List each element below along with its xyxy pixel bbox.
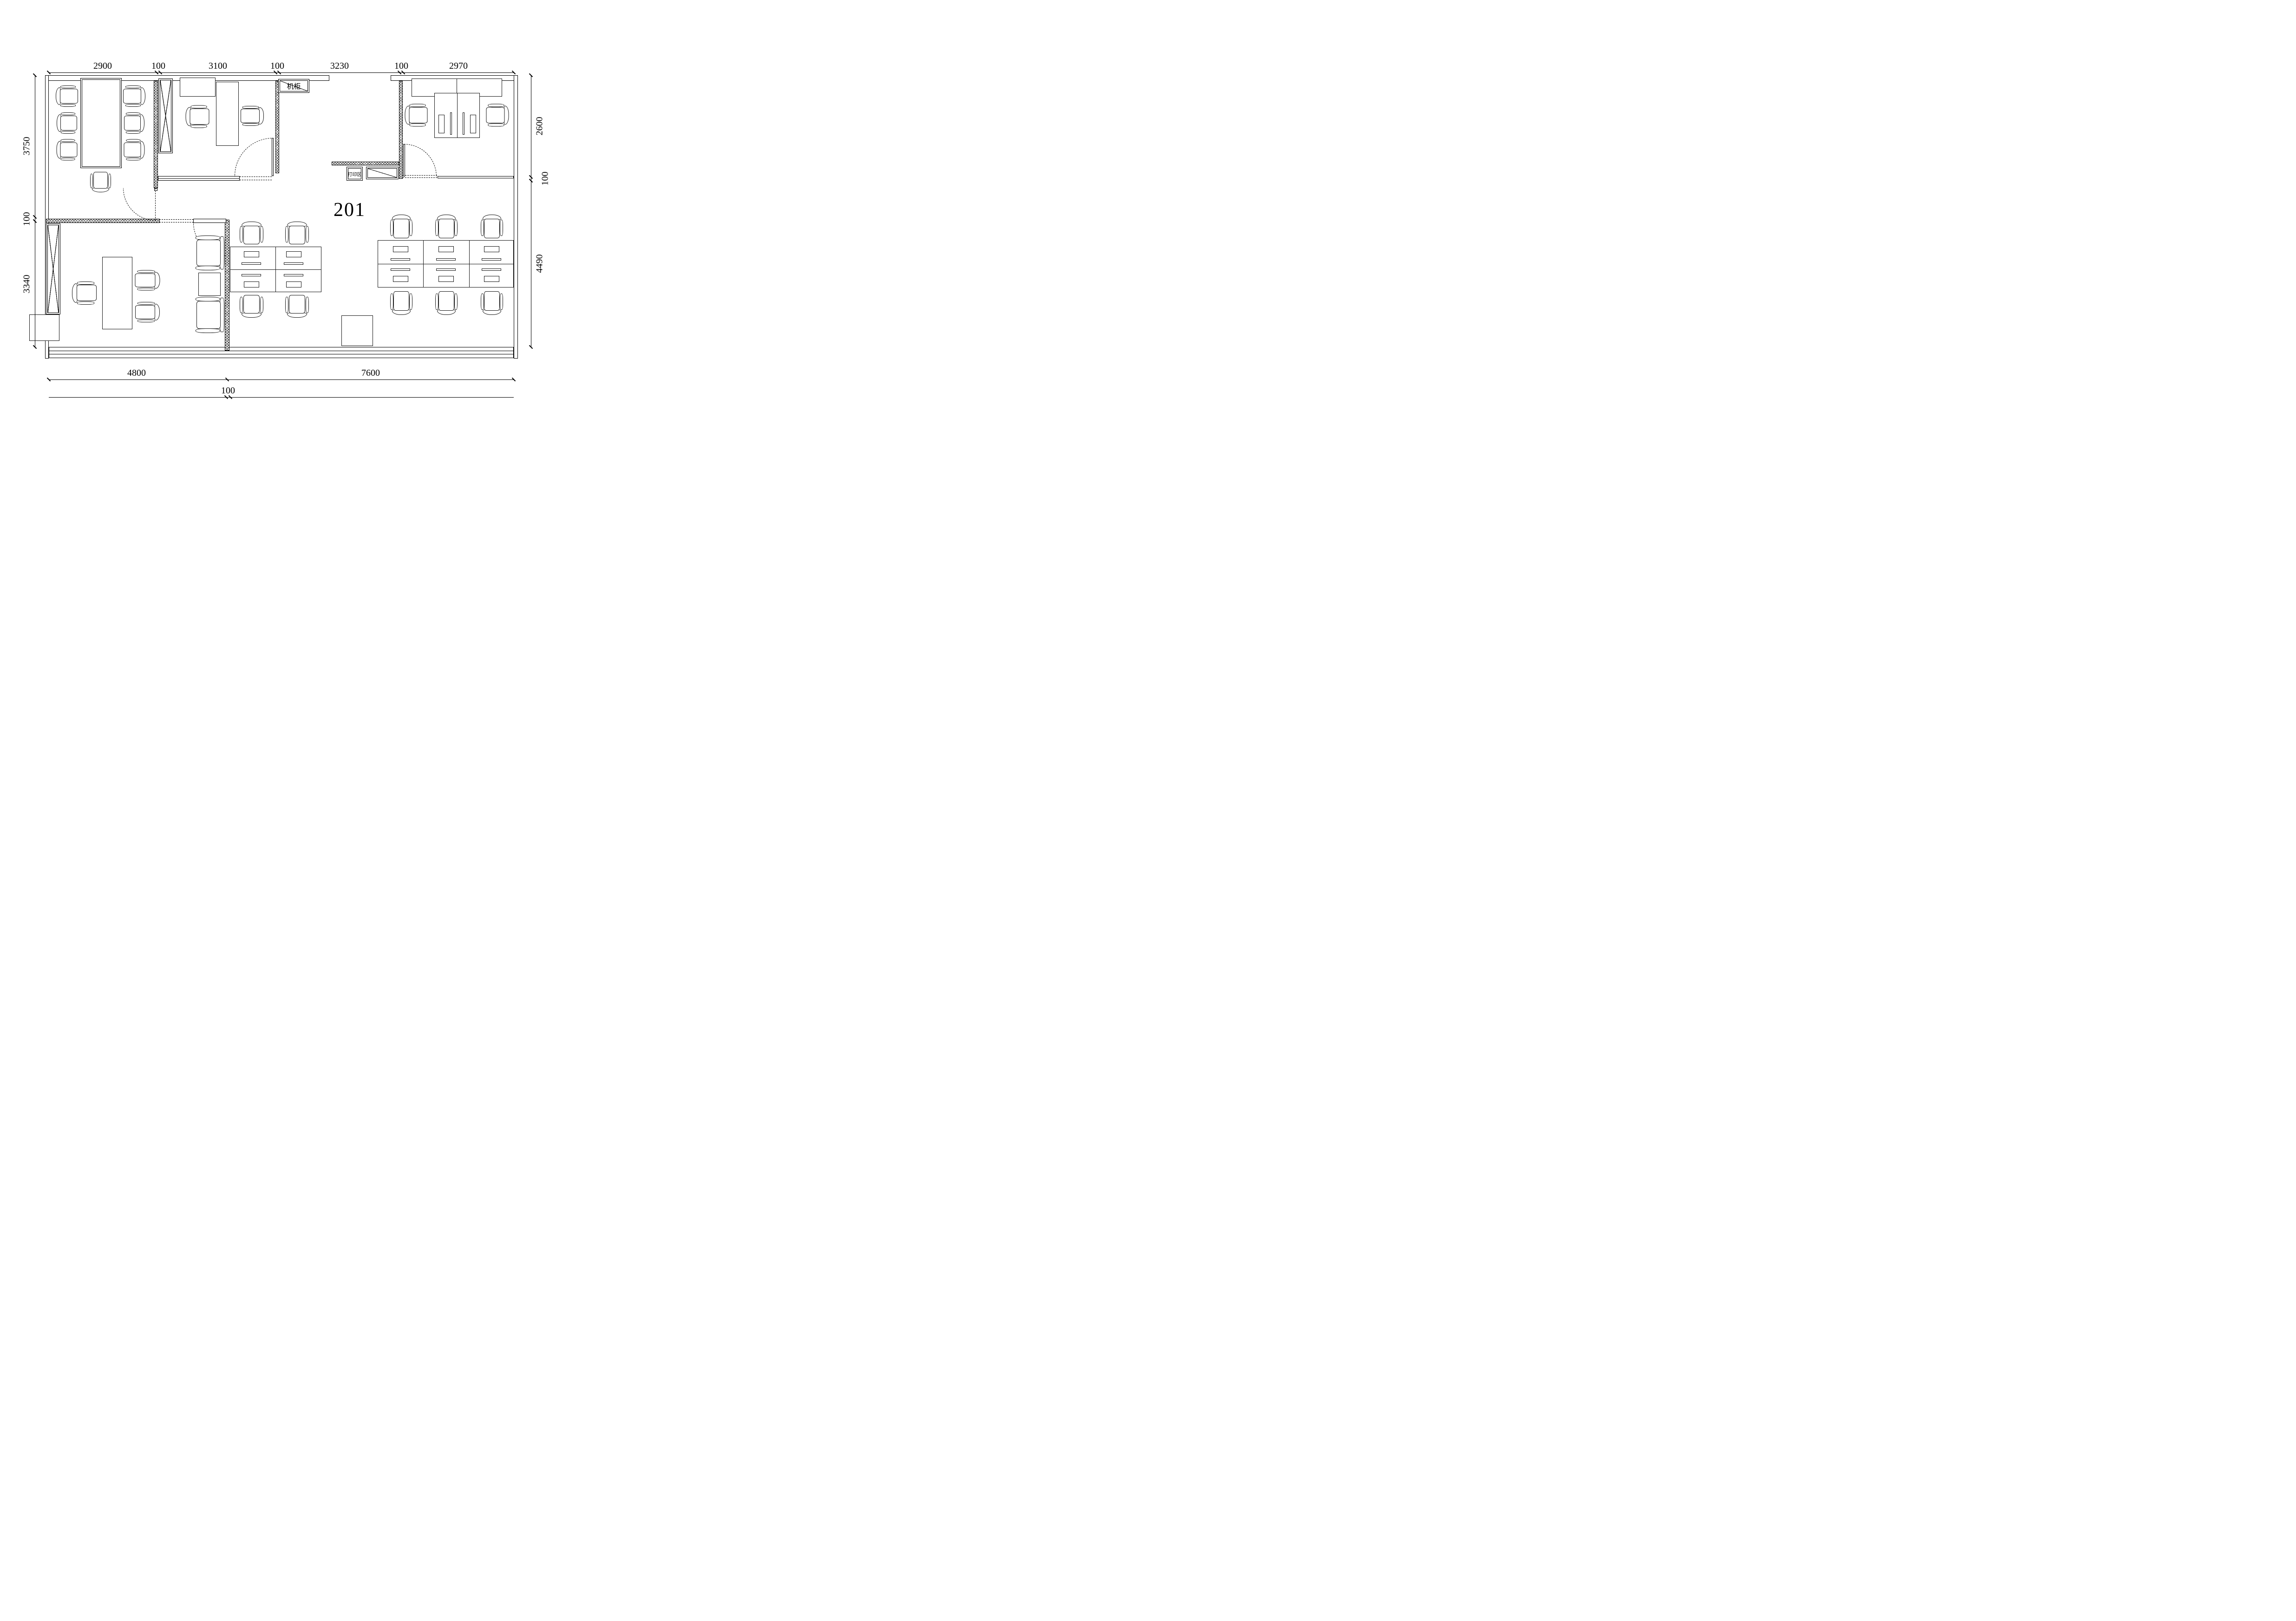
dim-top-3: 3100 [209,61,227,72]
dim-bottom-2: 7600 [361,368,380,379]
workstation-chair [390,290,412,315]
door-leaf-meeting-room [155,188,156,221]
dim-line-bottom [49,379,514,380]
office2-desk [216,82,239,146]
monitor [438,276,454,282]
conference-chair [56,85,79,107]
workstation-chair [435,290,458,315]
dim-bottom-offset: 100 [221,386,235,396]
dim-top-6: 100 [394,61,408,72]
office2-guest-chair [239,106,264,126]
wall-office4-left [399,81,403,179]
conference-chair [90,171,111,192]
server-cabinet-label: 机柜 [278,79,309,93]
keyboard [436,258,456,261]
workstation-chair [240,294,263,318]
lounge-sofa [195,235,224,270]
door-leaf-office4 [403,144,405,176]
glass-mid-line [158,178,240,179]
floor-cabinet-box [341,315,373,346]
window-curtain-wall-bottom [49,347,514,358]
wall-office2-right [275,81,279,173]
workstation-chair [481,215,503,240]
keyboard [470,115,476,133]
keyboard [482,258,501,261]
monitor [244,281,259,288]
room-number: 201 [334,199,366,221]
keyboard [438,115,445,133]
keyboard [284,262,303,265]
door-threshold-office2 [240,176,272,180]
dim-line-left [35,75,35,347]
desk-divider [230,269,321,270]
workstation-chair [240,222,263,246]
keyboard [482,268,501,271]
office4-chair [405,104,429,127]
keyboard [391,258,410,261]
dim-top-4: 100 [270,61,284,72]
dim-line-right [531,75,531,347]
floor-plan: 机柜 打印区 201 [0,0,574,405]
monitor [463,112,464,135]
room3-guest-chair [134,270,160,291]
dim-line-top [49,72,514,73]
door-arc-meeting-room [123,188,156,221]
door-leaf-room3 [193,219,226,223]
office2-exec-chair [186,105,211,128]
workstation-chair [285,294,309,318]
office4-chair [485,104,509,127]
dim-right-1: 2600 [535,108,545,145]
dim-left-1: 3750 [22,128,33,165]
conference-table [80,78,122,168]
dim-top-7: 2970 [449,61,468,72]
conference-chair [122,85,145,107]
monitor [286,251,301,257]
workstation-chair [390,215,412,240]
lounge-sofa [195,297,224,333]
monitor [450,112,452,135]
monitor [484,246,499,252]
dim-left-3: 3340 [22,266,33,303]
monitor [244,251,259,257]
lounge-table [198,273,221,296]
room3-guest-chair [134,302,160,322]
conference-chair [57,112,78,134]
keyboard [436,268,456,271]
monitor [393,246,408,252]
keyboard [284,274,303,276]
dim-bottom-1: 4800 [127,368,146,379]
print-area-label: 打印区 [347,167,363,181]
dim-top-2: 100 [151,61,165,72]
monitor [438,246,454,252]
conference-chair [57,139,78,161]
keyboard [242,262,261,265]
monitor [484,276,499,282]
workstation-chair [285,222,309,246]
wall-meeting-office-partition [154,81,158,188]
room3-desk [102,257,132,329]
room3-exec-chair [72,281,98,305]
ac-unit-box [29,314,59,341]
conference-chair [123,139,145,161]
cabinet-x-room3 [46,223,60,314]
dim-top-5: 3230 [330,61,349,72]
keyboard [242,274,261,276]
monitor [393,276,408,282]
dim-right-2: 100 [540,160,551,197]
desk-divider [457,93,458,138]
office2-side-cabinet [180,78,216,97]
print-area-cabinet [366,167,399,179]
dim-left-2: 100 [22,201,33,238]
dim-top-1: 2900 [93,61,112,72]
keyboard [391,268,410,271]
workstation-chair [435,215,458,240]
door-arc-office4 [404,144,437,176]
dim-right-3: 4490 [535,245,545,282]
conference-chair [123,112,144,134]
monitor [286,281,301,288]
dim-line-bottom-2 [49,397,514,398]
wall-office4-bottom [438,176,514,178]
desk-divider [378,264,514,264]
door-leaf-office2 [272,138,274,176]
door-threshold-room3 [159,219,193,222]
door-arc-office2 [235,138,273,176]
wall-print-area-top [332,162,399,165]
wall-right [514,75,518,359]
workstation-chair [481,290,503,315]
wall-room3-top [46,219,160,223]
cabinet-x-office2 [158,78,173,153]
